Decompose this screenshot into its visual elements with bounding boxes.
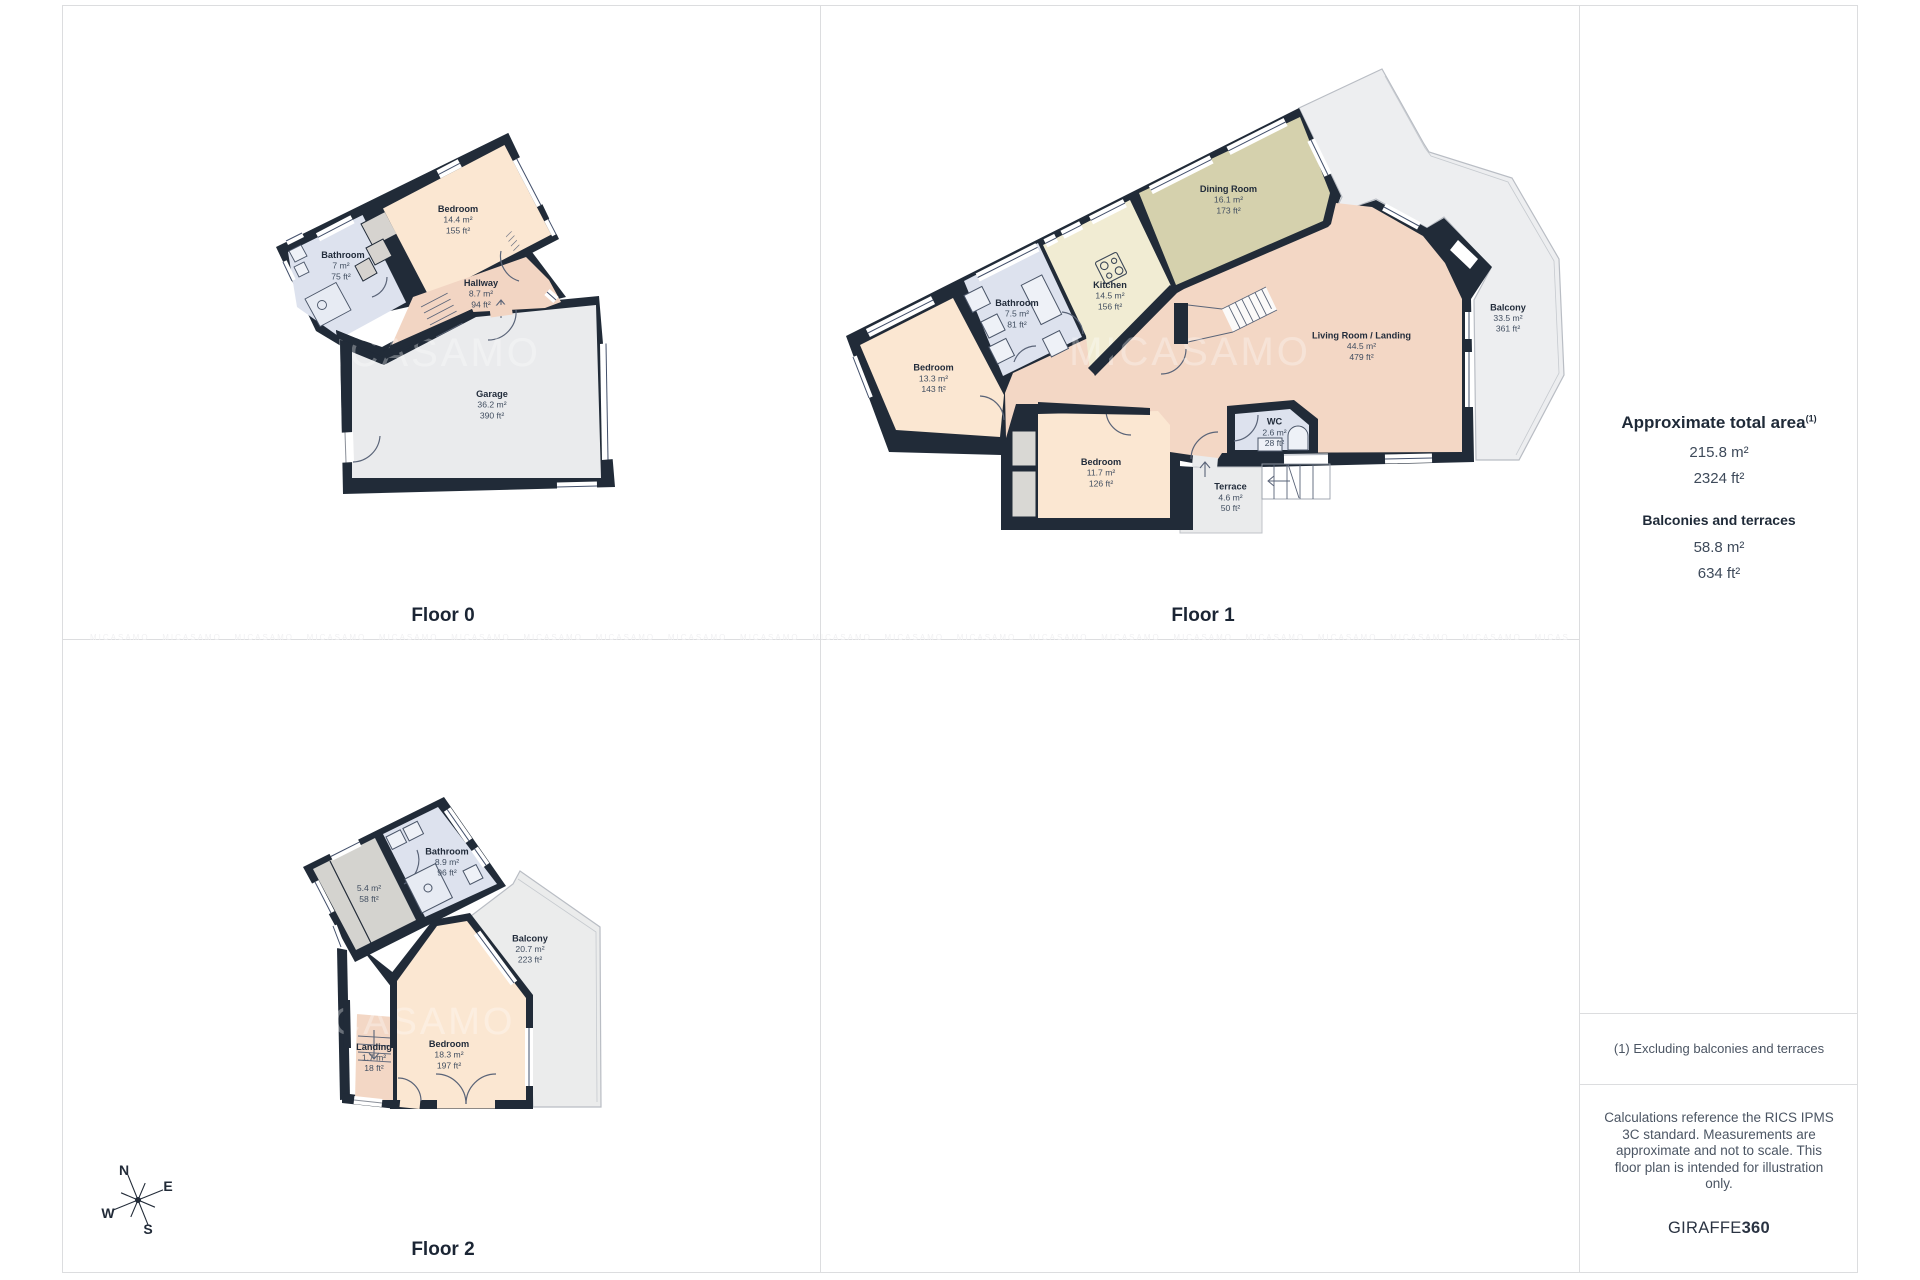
svg-text:Bathroom: Bathroom [995,298,1038,308]
svg-text:WC: WC [1267,417,1283,427]
svg-text:44.5 m²: 44.5 m² [1347,341,1376,351]
svg-text:Landing: Landing [356,1042,392,1052]
svg-text:36.2 m²: 36.2 m² [477,400,506,410]
svg-text:197 ft²: 197 ft² [437,1060,462,1070]
svg-text:11.7 m²: 11.7 m² [1087,468,1116,478]
svg-text:Bedroom: Bedroom [429,1039,469,1049]
svg-text:Kitchen: Kitchen [1093,280,1127,290]
svg-text:155 ft²: 155 ft² [446,225,471,235]
svg-text:E: E [163,1178,172,1194]
svg-text:81 ft²: 81 ft² [1007,319,1027,329]
svg-text:Bedroom: Bedroom [913,363,953,373]
svg-text:20.7 m²: 20.7 m² [515,944,544,954]
svg-text:Bathroom: Bathroom [321,250,364,260]
svg-text:Hallway: Hallway [464,278,499,288]
svg-text:18 ft²: 18 ft² [364,1063,384,1073]
svg-text:7 m²: 7 m² [332,261,349,271]
svg-text:94 ft²: 94 ft² [471,299,491,309]
svg-text:Bedroom: Bedroom [438,204,478,214]
svg-text:S: S [143,1221,152,1237]
svg-text:126 ft²: 126 ft² [1089,478,1114,488]
svg-text:Terrace: Terrace [1214,482,1247,492]
svg-text:Balcony: Balcony [512,933,549,943]
svg-text:1.7 m²: 1.7 m² [362,1053,386,1063]
svg-text:50 ft²: 50 ft² [1221,503,1241,513]
svg-text:14.4 m²: 14.4 m² [443,215,472,225]
svg-text:96 ft²: 96 ft² [437,868,457,878]
svg-text:479 ft²: 479 ft² [1349,352,1374,362]
svg-text:18.3 m²: 18.3 m² [434,1050,463,1060]
svg-text:75 ft²: 75 ft² [331,271,351,281]
svg-text:2.6 m²: 2.6 m² [1262,427,1286,437]
svg-text:361 ft²: 361 ft² [1496,324,1521,334]
svg-text:4.6 m²: 4.6 m² [1218,492,1242,502]
svg-text:Dining Room: Dining Room [1200,184,1257,194]
svg-text:173 ft²: 173 ft² [1216,205,1241,215]
svg-text:8.7 m²: 8.7 m² [469,289,493,299]
svg-text:Bathroom: Bathroom [425,846,468,856]
svg-text:223 ft²: 223 ft² [518,955,543,965]
svg-text:7.5 m²: 7.5 m² [1005,309,1029,319]
svg-text:13.3 m²: 13.3 m² [919,373,948,383]
svg-text:156 ft²: 156 ft² [1098,301,1123,311]
svg-text:14.5 m²: 14.5 m² [1095,291,1124,301]
svg-text:58 ft²: 58 ft² [359,894,379,904]
svg-text:Living Room / Landing: Living Room / Landing [1312,330,1411,340]
svg-text:16.1 m²: 16.1 m² [1214,195,1243,205]
svg-text:8.9 m²: 8.9 m² [435,857,459,867]
svg-text:390 ft²: 390 ft² [480,410,505,420]
svg-text:Garage: Garage [476,389,508,399]
svg-text:Balcony: Balcony [1490,302,1527,312]
svg-text:33.5 m²: 33.5 m² [1493,313,1522,323]
svg-text:W: W [101,1205,115,1221]
svg-text:N: N [119,1162,129,1178]
svg-text:5.4 m²: 5.4 m² [357,883,381,893]
svg-text:Bedroom: Bedroom [1081,457,1121,467]
svg-text:MICASAMO: MICASAMO [285,1001,516,1043]
svg-text:143 ft²: 143 ft² [921,384,946,394]
svg-text:28 ft²: 28 ft² [1265,438,1285,448]
